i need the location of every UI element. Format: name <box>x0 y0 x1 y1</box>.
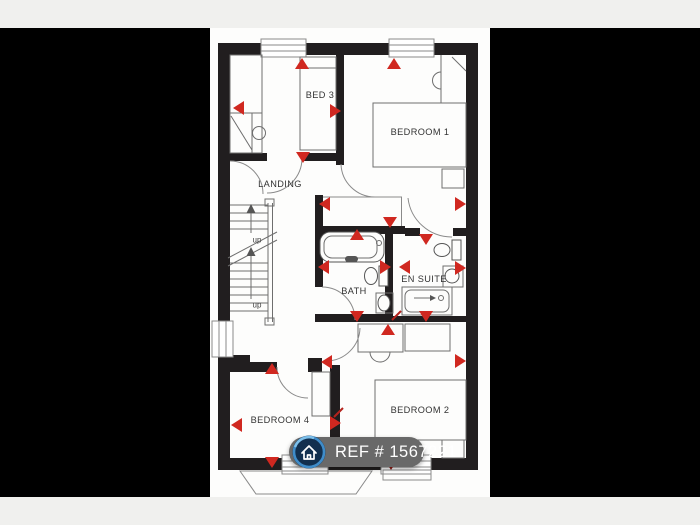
room-label-bedroom4: BEDROOM 4 <box>251 415 310 425</box>
staircase: up up <box>228 199 277 325</box>
bedroom1-furniture <box>373 55 466 188</box>
camera-marker <box>455 197 466 211</box>
window-top-1 <box>261 39 306 57</box>
camera-marker <box>295 58 309 69</box>
airing-cupboard <box>230 55 266 153</box>
room-label-bed3: BED 3 <box>306 90 335 100</box>
ensuite-shower <box>402 287 452 315</box>
window-top-2 <box>389 39 434 57</box>
room-label-ensuite: EN SUITE <box>401 274 447 284</box>
camera-marker <box>321 355 332 369</box>
camera-marker <box>387 58 401 69</box>
window-left <box>212 321 233 357</box>
room-label-bedroom2: BEDROOM 2 <box>391 405 450 415</box>
camera-marker <box>231 418 242 432</box>
stairs-up-label-1: up <box>253 236 262 245</box>
bedroom4-door-arc <box>277 367 308 398</box>
house-icon <box>291 434 327 470</box>
bathtub <box>320 232 384 262</box>
camera-marker <box>399 260 410 274</box>
ref-number: REF # 1567221 <box>335 437 457 467</box>
stairs-up-label-2: up <box>253 301 262 310</box>
camera-marker <box>455 354 466 368</box>
ensuite-toilet <box>434 240 461 260</box>
room-label-bedroom1: BEDROOM 1 <box>391 127 450 137</box>
camera-marker <box>381 324 395 335</box>
bedroom1-door-arc <box>341 164 375 197</box>
ref-banner: REF # 1567221 <box>289 437 424 467</box>
camera-marker <box>419 234 433 245</box>
cupboard-door-arc <box>230 161 263 194</box>
bedroom4-wardrobe <box>312 372 330 416</box>
camera-marker <box>455 261 466 275</box>
furniture-layer <box>230 55 466 458</box>
room-label-bath: BATH <box>341 286 366 296</box>
bed3-bed <box>300 57 336 150</box>
room-label-landing: LANDING <box>258 179 302 189</box>
floorplan-image: up up <box>0 0 700 525</box>
stairs-up-arrow-2 <box>247 247 256 299</box>
water-cylinder <box>253 127 266 140</box>
